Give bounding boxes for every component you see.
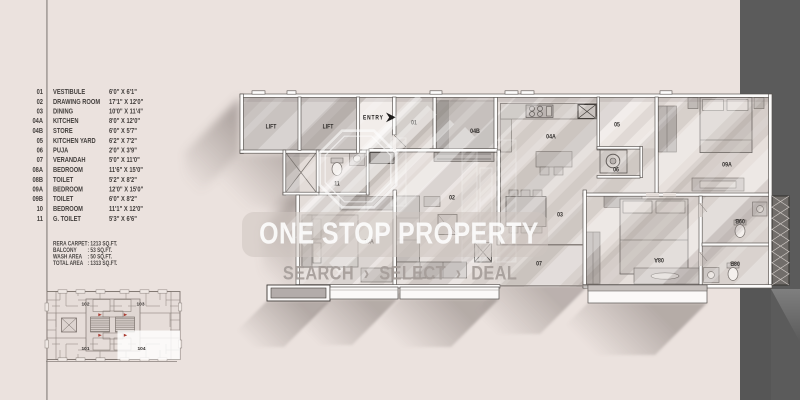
svg-text:06: 06 xyxy=(613,167,619,173)
svg-text:2'0" X 3'9": 2'0" X 3'9" xyxy=(109,147,137,155)
svg-text:05: 05 xyxy=(614,122,621,128)
svg-text:6'2" X 7'2": 6'2" X 7'2" xyxy=(109,137,137,145)
svg-text:6'0" X 8'2": 6'0" X 8'2" xyxy=(109,196,137,204)
svg-text:12'0" X 15'0": 12'0" X 15'0" xyxy=(109,186,143,194)
svg-text:BEDROOM: BEDROOM xyxy=(53,167,83,175)
svg-text:DINING: DINING xyxy=(53,108,73,116)
svg-text:6'0" X 5'7": 6'0" X 5'7" xyxy=(109,128,137,136)
svg-text:02: 02 xyxy=(449,195,455,201)
svg-text:LIFT: LIFT xyxy=(323,124,334,130)
svg-text:8'0" X 12'0": 8'0" X 12'0" xyxy=(109,118,140,126)
svg-text:SEARCH › SELECT › DEAL: SEARCH › SELECT › DEAL xyxy=(283,262,517,284)
svg-text:5'0" X 11'0": 5'0" X 11'0" xyxy=(109,157,140,165)
svg-text:09B: 09B xyxy=(735,217,745,223)
svg-text:KITCHEN YARD: KITCHEN YARD xyxy=(53,137,96,145)
svg-text:03: 03 xyxy=(557,212,563,218)
svg-text:06: 06 xyxy=(37,147,44,155)
svg-text:5'2" X 8'2": 5'2" X 8'2" xyxy=(109,176,137,184)
svg-text:VESTIBULE: VESTIBULE xyxy=(53,89,86,97)
svg-text:11: 11 xyxy=(37,215,43,223)
svg-text:04A: 04A xyxy=(546,134,556,140)
svg-text:08B: 08B xyxy=(730,259,740,265)
svg-text:01: 01 xyxy=(37,89,44,97)
svg-text:10: 10 xyxy=(37,206,44,214)
svg-text:VERANDAH: VERANDAH xyxy=(53,157,86,165)
svg-text:TOILET: TOILET xyxy=(53,176,73,184)
svg-text:6'0" X 6'1": 6'0" X 6'1" xyxy=(109,89,137,97)
svg-text:G. TOILET: G. TOILET xyxy=(53,215,81,223)
svg-text:TOILET: TOILET xyxy=(53,196,73,204)
svg-text:5'3" X 6'6": 5'3" X 6'6" xyxy=(109,215,137,223)
svg-text:11'1" X 12'0": 11'1" X 12'0" xyxy=(109,206,143,214)
svg-text:04A: 04A xyxy=(32,118,43,126)
svg-text:STORE: STORE xyxy=(53,128,73,136)
svg-text:08A: 08A xyxy=(654,256,664,262)
svg-text:08A: 08A xyxy=(32,167,43,175)
svg-text:LIFT: LIFT xyxy=(266,124,277,130)
svg-text:102: 102 xyxy=(81,302,89,308)
svg-text:101: 101 xyxy=(81,346,89,352)
svg-text:08B: 08B xyxy=(32,176,43,184)
svg-text:07: 07 xyxy=(37,157,44,165)
svg-text:10'0" X 11'4": 10'0" X 11'4" xyxy=(109,108,143,116)
svg-text:KITCHEN: KITCHEN xyxy=(53,118,79,126)
svg-text:09A: 09A xyxy=(32,186,43,194)
svg-text:BEDROOM: BEDROOM xyxy=(53,206,83,214)
svg-text:03: 03 xyxy=(37,108,44,116)
svg-text:09B: 09B xyxy=(32,196,43,204)
svg-text:103: 103 xyxy=(136,302,144,308)
svg-text:04B: 04B xyxy=(32,128,43,136)
svg-text:104: 104 xyxy=(137,346,145,352)
svg-text:11'6" X 15'0": 11'6" X 15'0" xyxy=(109,167,143,175)
svg-text:TOTAL AREA: TOTAL AREA xyxy=(53,261,83,268)
svg-text:ONE STOP PROPERTY: ONE STOP PROPERTY xyxy=(259,216,539,250)
svg-text:02: 02 xyxy=(37,98,44,106)
svg-text:09A: 09A xyxy=(722,162,732,168)
svg-text:: 1313 SQ.FT.: : 1313 SQ.FT. xyxy=(88,261,118,268)
svg-text:BEDROOM: BEDROOM xyxy=(53,186,83,194)
svg-text:ENTRY: ENTRY xyxy=(363,115,384,122)
svg-text:17'1" X 12'0": 17'1" X 12'0" xyxy=(109,98,143,106)
svg-text:PUJA: PUJA xyxy=(53,147,69,155)
svg-text:07: 07 xyxy=(536,261,542,267)
svg-text:DRAWING ROOM: DRAWING ROOM xyxy=(53,98,100,106)
svg-text:05: 05 xyxy=(37,137,44,145)
